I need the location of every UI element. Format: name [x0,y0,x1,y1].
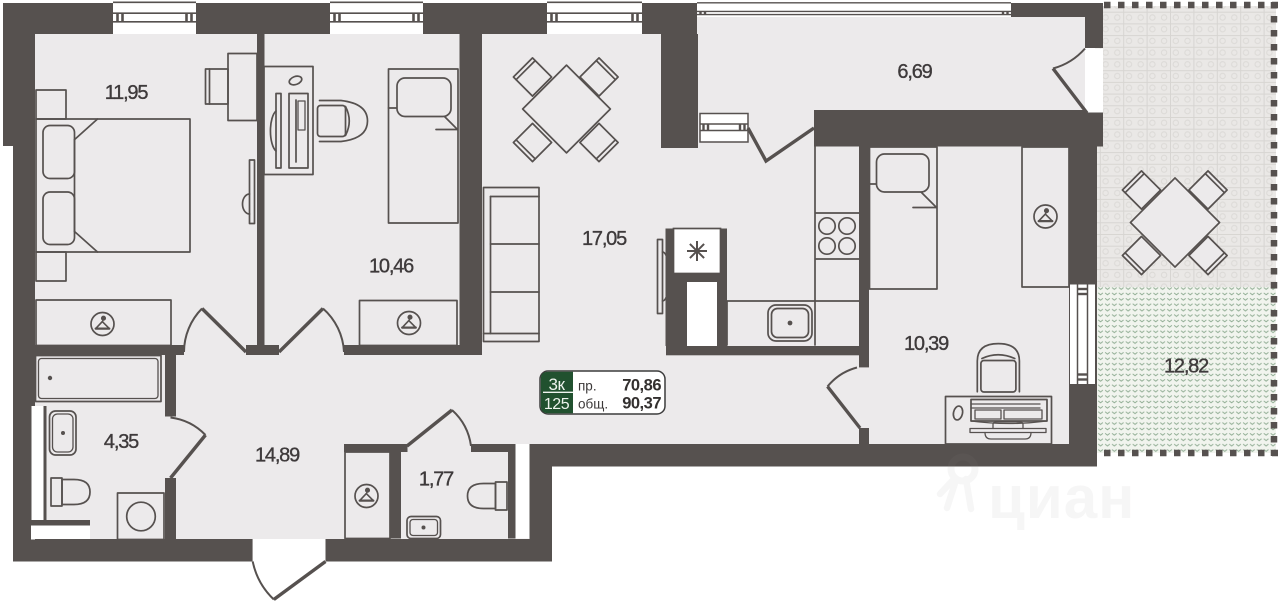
svg-text:общ.: общ. [578,397,608,412]
svg-text:10,39: 10,39 [904,333,949,355]
svg-text:14,89: 14,89 [255,445,300,467]
svg-text:10,46: 10,46 [369,256,414,278]
svg-text:11,95: 11,95 [105,82,149,104]
svg-text:70,86: 70,86 [622,377,661,395]
svg-text:1,77: 1,77 [419,469,454,491]
svg-text:пр.: пр. [578,379,597,394]
svg-text:125: 125 [544,396,570,413]
svg-text:3к: 3к [549,375,566,394]
svg-text:12,82: 12,82 [1164,356,1209,378]
svg-text:90,37: 90,37 [622,395,661,413]
svg-text:циан: циан [988,464,1135,531]
svg-text:4,35: 4,35 [104,431,139,453]
svg-text:17,05: 17,05 [582,228,627,250]
svg-text:6,69: 6,69 [897,61,932,83]
